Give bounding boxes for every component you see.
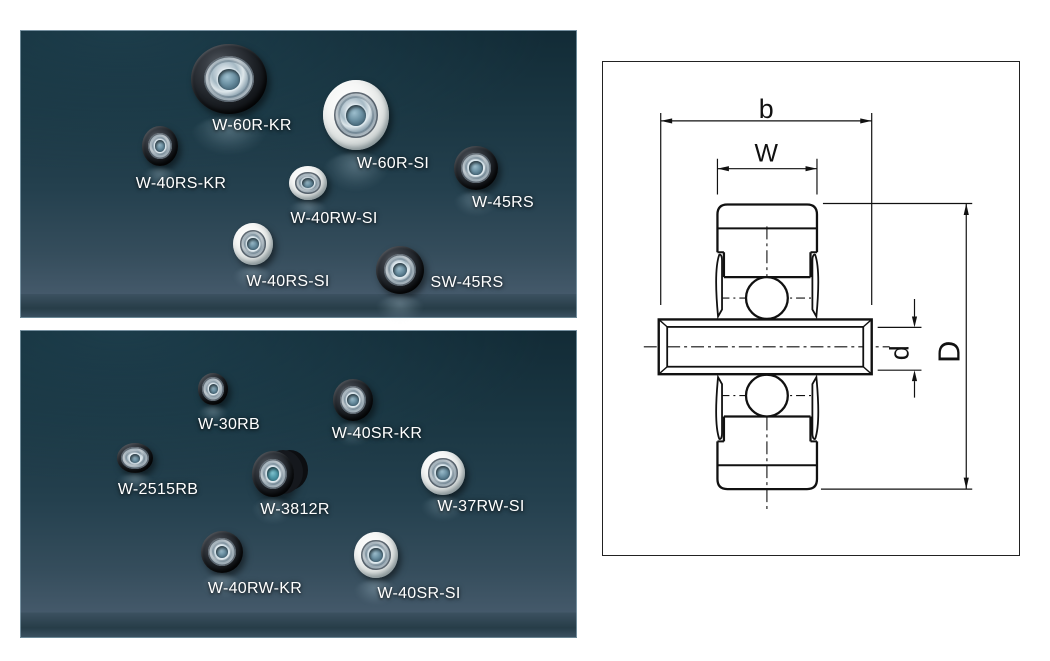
roller-photo [333, 379, 373, 421]
reflection [376, 296, 424, 322]
product-label: W-40RW-KR [208, 580, 302, 598]
product-label: SW-45RS [431, 274, 504, 292]
roller-photo [376, 246, 424, 294]
roller-photo [142, 126, 178, 166]
product-label: W-45RS [472, 194, 534, 212]
dim-label-w: W [754, 140, 778, 168]
product-label: W-60R-SI [357, 155, 429, 173]
product-label: W-60R-KR [212, 117, 291, 135]
roller-photo [191, 44, 267, 114]
product-label: W-40RS-KR [136, 175, 226, 193]
product-label: W-2515RB [118, 481, 198, 499]
axle-bore [209, 384, 218, 394]
roller-photo [323, 80, 389, 150]
roller-photo [454, 146, 498, 190]
catalog-page: { "panels": { "top": { "items": [ {"labe… [0, 0, 1050, 661]
roller-photo [354, 532, 398, 578]
roller-photo [117, 443, 153, 473]
axle-bore [469, 161, 482, 174]
roller-photo [201, 531, 243, 573]
product-label: W-37RW-SI [437, 498, 524, 516]
product-label: W-30RB [198, 416, 260, 434]
axle-bore [130, 454, 141, 463]
roller-photo [289, 166, 327, 200]
roller-cross-section-drawing: b W D d [603, 62, 1019, 555]
dim-label-shaft-diameter: d [885, 345, 915, 360]
photo-panel-top: W-60R-KR W-60R-SI W-40RS-KR W-40RW-SI [20, 30, 577, 318]
shaft [659, 319, 872, 374]
axle-bore [369, 548, 382, 562]
photo-panel-bottom: W-30RB W-40SR-KR W-2515RB W-3812R [20, 330, 577, 638]
product-label: W-40RS-SI [246, 273, 329, 291]
axle-bore [346, 105, 366, 126]
dimension-diagram: b W D d [602, 61, 1020, 556]
axle-bore [267, 467, 280, 481]
axle-bore [218, 69, 241, 90]
axle-bore [302, 178, 313, 188]
roller-photo [233, 223, 273, 265]
product-label: W-40RW-SI [290, 210, 377, 228]
dim-label-b: b [759, 94, 774, 124]
roller-photo [252, 451, 294, 497]
product-label: W-40SR-SI [377, 585, 460, 603]
roller-photo [198, 373, 228, 405]
dim-label-outer-diameter: D [931, 341, 966, 363]
product-label: W-40SR-KR [332, 425, 422, 443]
axle-bore [436, 466, 449, 479]
roller-photo [421, 451, 465, 495]
product-label: W-3812R [260, 501, 329, 519]
